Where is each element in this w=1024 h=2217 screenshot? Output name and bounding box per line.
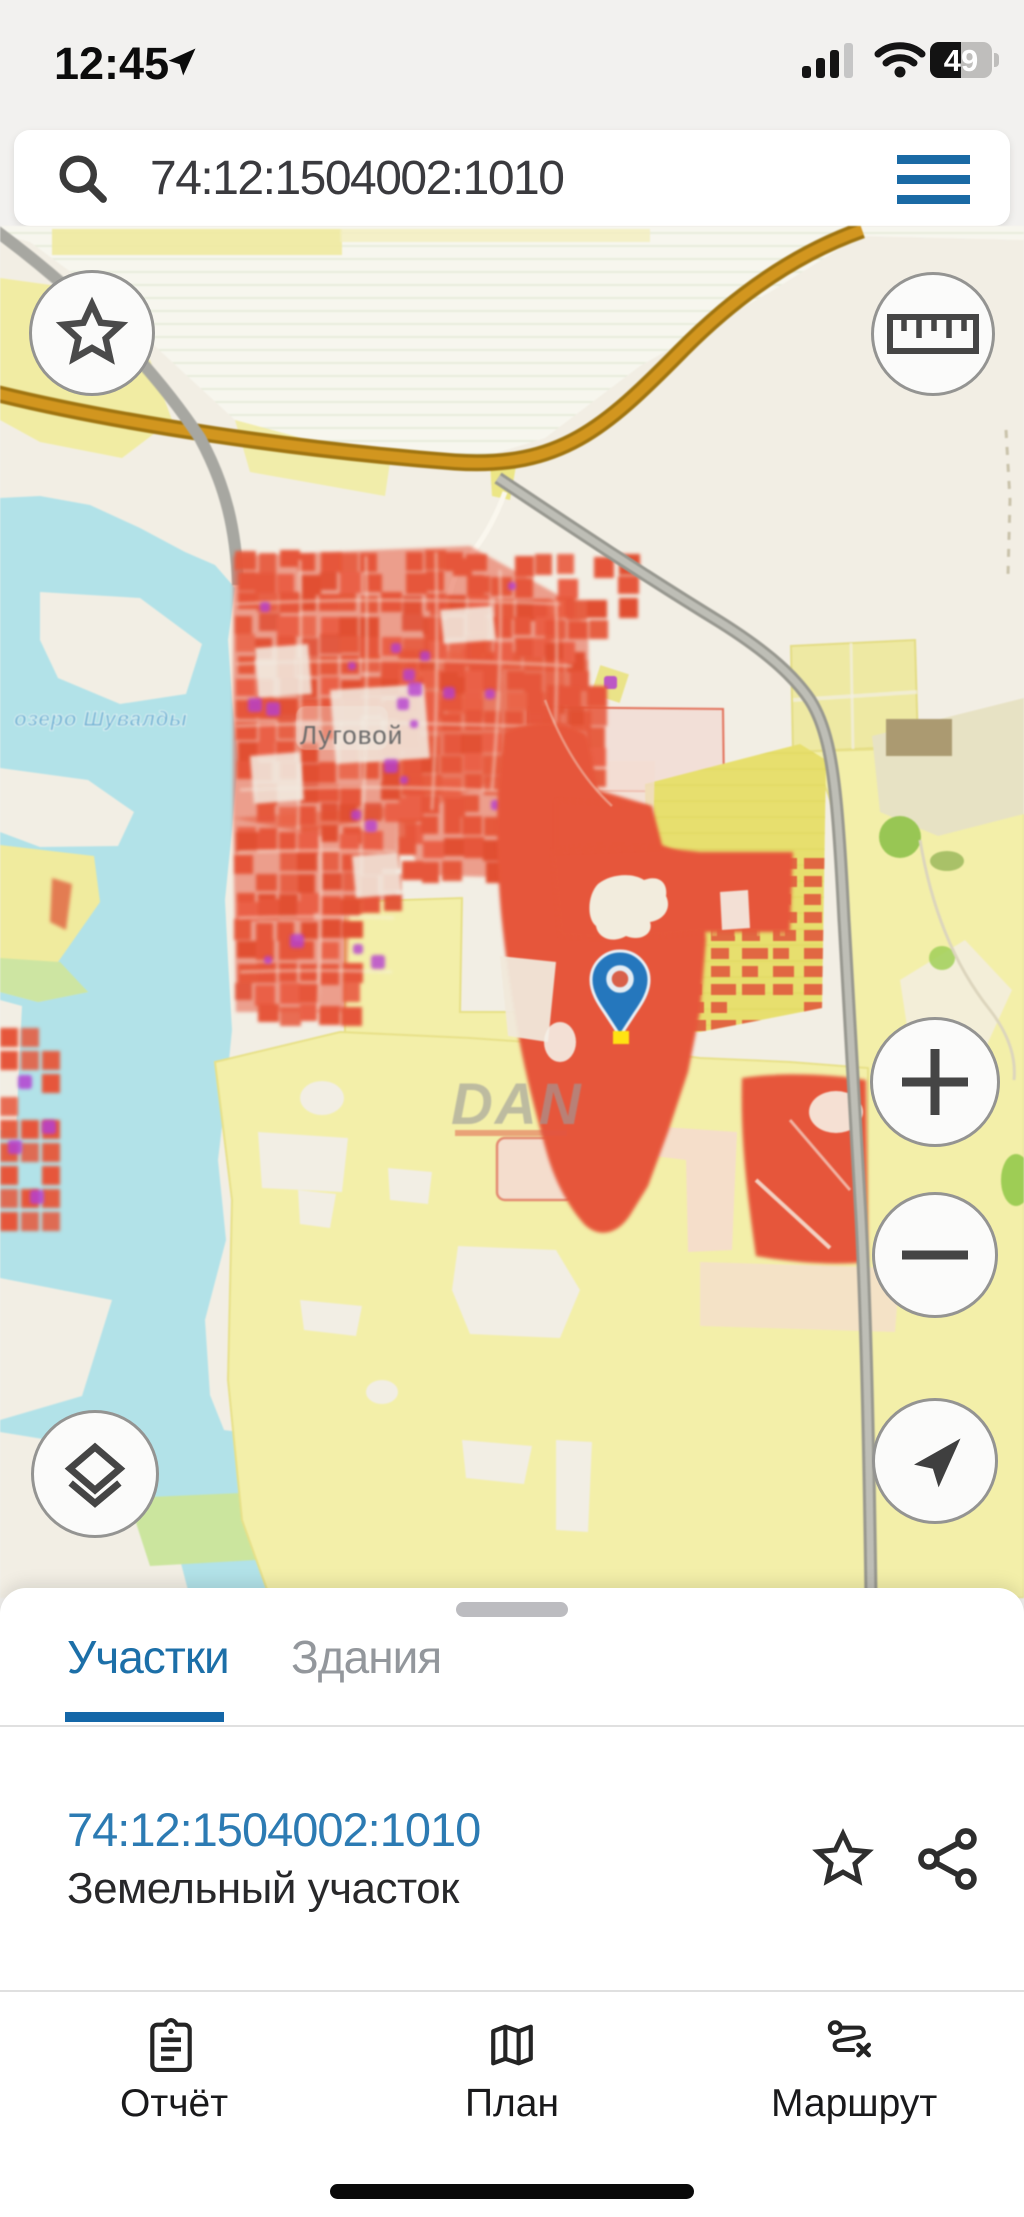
svg-text:озеро Шувалды: озеро Шувалды [14, 708, 188, 731]
svg-text:Луговой: Луговой [300, 720, 403, 750]
svg-text:DAN: DAN [451, 1072, 583, 1137]
